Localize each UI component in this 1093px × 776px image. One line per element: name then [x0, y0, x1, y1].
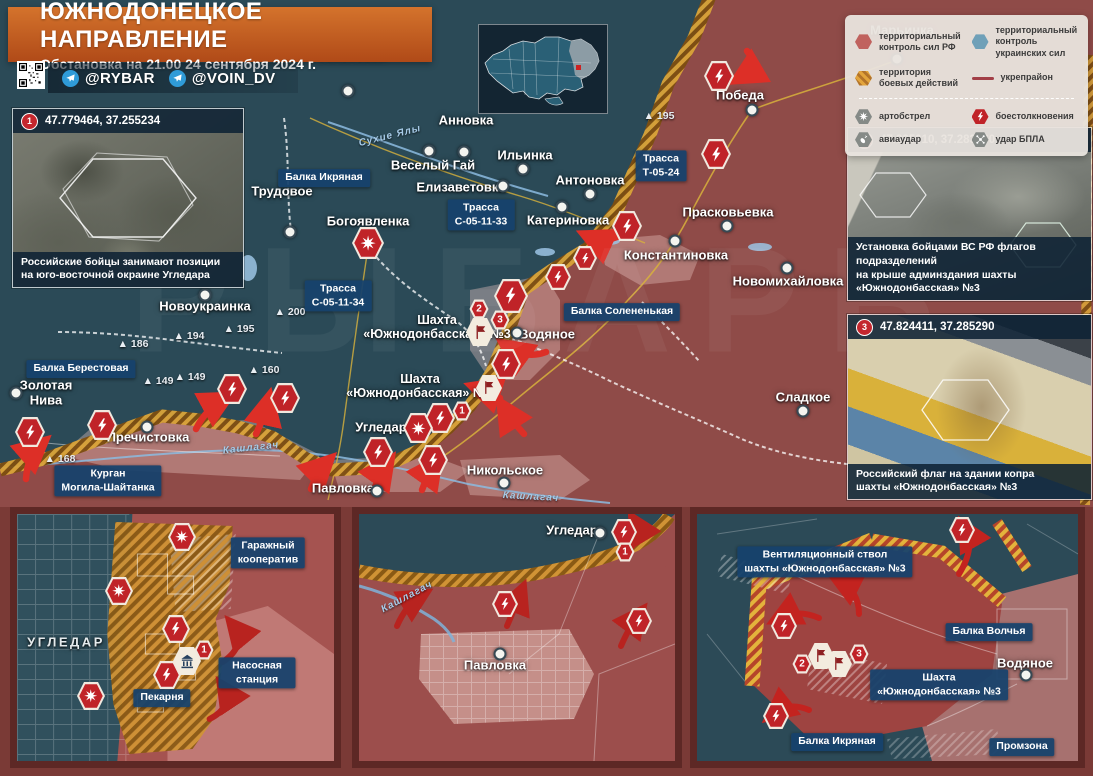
clash-icon — [363, 437, 393, 467]
town-dot — [498, 477, 511, 490]
clash-icon — [418, 445, 448, 475]
marker-badge: 3 — [491, 311, 510, 330]
photo-inset-1: 1 47.779464, 37.255234 Российские бойцы … — [12, 108, 244, 288]
town-dot — [594, 527, 607, 540]
clash-icon — [545, 264, 571, 290]
artillery-icon — [352, 227, 384, 259]
clash-icon — [972, 109, 989, 124]
area-label: Пекарня — [133, 689, 190, 707]
town-dot — [511, 327, 524, 340]
height-marker: ▲ 200 — [275, 306, 306, 318]
area-label: Шахта «Южнодонбасская» №3 — [870, 669, 1008, 700]
clash-icon — [573, 246, 597, 270]
artillery-icon — [105, 577, 133, 605]
town-label: Угледар — [355, 421, 406, 436]
page-title: ЮЖНОДОНЕЦКОЕ НАПРАВЛЕНИЕ — [40, 0, 432, 54]
rf-zone-swatch — [855, 34, 872, 49]
clash-icon — [771, 613, 797, 639]
town-dot — [497, 180, 510, 193]
marker-badge: 2 — [470, 300, 489, 319]
photo-header: 1 47.779464, 37.255234 — [13, 109, 243, 133]
town-label: Ильинка — [497, 149, 552, 164]
legend-item-artillery: артобстрел — [855, 109, 962, 124]
town-dot — [584, 188, 597, 201]
area-label: Балка Икряная — [278, 169, 370, 187]
photo-caption: Российский флаг на здании копра шахты «Ю… — [848, 464, 1091, 499]
town-dot — [10, 387, 23, 400]
clash-icon — [949, 517, 975, 543]
town-dot — [721, 220, 734, 233]
town-dot — [141, 421, 154, 434]
height-marker: ▲ 195 — [224, 323, 255, 335]
ua-zone-swatch — [972, 34, 989, 49]
legend-divider — [859, 98, 1074, 100]
clash-icon — [15, 417, 45, 447]
height-marker: ▲ 168 — [45, 453, 76, 465]
town-label: Константиновка — [624, 249, 728, 264]
legend-label: территория боевых действий — [879, 67, 962, 90]
town-label: Сладкое — [776, 391, 831, 406]
marker-badge: 1 — [195, 641, 214, 660]
legend-item-drone: удар БПЛА — [972, 132, 1079, 147]
photo-inset-3: 3 47.824411, 37.285290 Российский флаг н… — [847, 314, 1092, 500]
legend-item-clash: боестолкновения — [972, 109, 1079, 124]
photo-number-badge: 3 — [856, 319, 873, 336]
town-label: Елизаветовка — [416, 181, 505, 196]
flag-icon — [476, 375, 502, 401]
marker-badge: 1 — [616, 543, 635, 562]
telegram-strip: @RYBAR @VOIN_DV — [48, 63, 298, 93]
artillery-icon — [168, 523, 196, 551]
clash-icon — [626, 608, 652, 634]
town-label: Водяное — [519, 328, 575, 343]
airstrike-icon — [855, 132, 872, 147]
height-marker: ▲ 160 — [249, 364, 280, 376]
legend-item-fortline: укрепрайон — [972, 67, 1079, 90]
photo-number-badge: 1 — [21, 113, 38, 130]
legend-item-airstrike: авиаудар — [855, 132, 962, 147]
area-label: Насосная станция — [219, 657, 296, 688]
town-label: Шахта «Южнодонбасская» №1 — [346, 372, 493, 400]
town-dot — [781, 262, 794, 275]
height-marker: ▲ 149 — [143, 375, 174, 387]
river-label: Кашлагач — [379, 579, 434, 615]
city-inset-mine-area: Вентиляционный ствол шахты «Южнодонбасск… — [690, 507, 1085, 768]
legend-label: территориальный контроль украинских сил — [996, 25, 1079, 59]
locator-highlight — [576, 65, 581, 70]
clash-icon — [763, 703, 789, 729]
artillery-icon — [855, 109, 872, 124]
town-dot — [284, 226, 297, 239]
town-label: Антоновка — [556, 174, 625, 189]
town-label: УГЛЕДАР — [27, 636, 105, 651]
title-bar: ЮЖНОДОНЕЦКОЕ НАПРАВЛЕНИЕ Обстановка на 2… — [8, 7, 432, 62]
town-dot — [669, 235, 682, 248]
town-dot — [423, 145, 436, 158]
marker-badge: 1 — [453, 402, 472, 421]
telegram-handle: @RYBAR — [85, 70, 155, 87]
area-label: Курган Могила-Шайтанка — [54, 465, 161, 496]
clash-icon — [611, 519, 637, 545]
photo-coordinates: 47.824411, 37.285290 — [880, 321, 994, 333]
legend-label: боестолкновения — [996, 111, 1074, 122]
town-dot — [556, 201, 569, 214]
telegram-icon — [62, 70, 79, 87]
qr-code — [17, 61, 45, 89]
clash-icon — [701, 139, 731, 169]
area-label: Промзона — [989, 738, 1054, 756]
map-poster: РЫБАРЬ МарьинкаПобедаУспеновкаАнновкаТру… — [0, 0, 1093, 776]
legend-item-rf-control: территориальный контроль сил РФ — [855, 25, 962, 59]
telegram-handle: @VOIN_DV — [192, 70, 276, 87]
photo-coordinates: 47.779464, 37.255234 — [45, 115, 160, 127]
town-label: Катериновка — [527, 214, 609, 229]
area-label: Балка Берестовая — [26, 360, 135, 378]
river-label: Кашлагач — [502, 490, 559, 504]
height-marker: ▲ 194 — [174, 330, 205, 342]
clash-icon — [494, 279, 528, 313]
legend: территориальный контроль сил РФ территор… — [845, 15, 1088, 156]
inset-labels-layer: Вентиляционный ствол шахты «Южнодонбасск… — [697, 514, 1078, 761]
telegram-link-voindv[interactable]: @VOIN_DV — [169, 70, 276, 87]
clash-icon — [492, 591, 518, 617]
town-label: Угледар — [546, 524, 597, 539]
legend-label: авиаудар — [879, 134, 921, 145]
town-label: Прасковьевка — [683, 206, 774, 221]
area-label: Балка Солененькая — [564, 303, 680, 321]
clash-icon — [270, 383, 300, 413]
flag-icon — [826, 651, 852, 677]
town-label: Золотая Нива — [20, 378, 73, 407]
town-label: Трудовое — [251, 185, 312, 200]
artillery-icon — [403, 413, 433, 443]
clash-icon — [162, 615, 190, 643]
height-marker: ▲ 149 — [175, 371, 206, 383]
height-marker: ▲ 186 — [118, 338, 149, 350]
area-label: Трасса Т-05-24 — [636, 150, 687, 181]
legend-item-combat-zone: территория боевых действий — [855, 67, 962, 90]
legend-label: укрепрайон — [1001, 72, 1053, 83]
inset-labels-layer: УГЛЕДАРГаражный кооперативНасосная станц… — [17, 514, 334, 761]
town-dot — [342, 85, 355, 98]
main-map: РЫБАРЬ МарьинкаПобедаУспеновкаАнновкаТру… — [0, 0, 1093, 507]
town-dot — [517, 163, 530, 176]
town-dot — [797, 405, 810, 418]
legend-label: удар БПЛА — [996, 134, 1045, 145]
photo-caption: Установка бойцами ВС РФ флагов подраздел… — [848, 237, 1091, 300]
photo-caption: Российские бойцы занимают позиции на юго… — [13, 252, 243, 287]
town-label: Новомихайловка — [733, 275, 844, 290]
area-label: Гаражный кооператив — [231, 537, 305, 568]
photo-header: 3 47.824411, 37.285290 — [848, 315, 1091, 339]
clash-icon — [704, 61, 734, 91]
town-label: Анновка — [439, 114, 494, 129]
area-label: Балка Икряная — [791, 733, 883, 751]
clash-icon — [612, 211, 642, 241]
town-label: Павловка — [464, 659, 526, 674]
inset-labels-layer: УгледарПавловкаКашлагач1 — [359, 514, 675, 761]
ukraine-locator-map — [478, 24, 608, 114]
area-label: Трасса С-05-11-33 — [448, 199, 515, 230]
town-label: Павловка — [312, 482, 374, 497]
town-dot — [746, 104, 759, 117]
clash-icon — [217, 374, 247, 404]
town-dot — [371, 485, 384, 498]
area-label: Балка Волчья — [946, 623, 1033, 641]
city-inset-pavlovka: УгледарПавловкаКашлагач1 — [352, 507, 682, 768]
drone-icon — [972, 132, 989, 147]
river-label: Сухие Ялы — [358, 123, 423, 149]
clash-icon — [87, 410, 117, 440]
town-dot — [494, 648, 507, 661]
town-dot — [458, 146, 471, 159]
legend-item-ua-control: территориальный контроль украинских сил — [972, 25, 1079, 59]
combat-zone-swatch — [855, 71, 872, 86]
town-label: Веселый Гай — [391, 159, 475, 174]
artillery-icon — [77, 682, 105, 710]
town-dot — [199, 289, 212, 302]
marker-badge: 3 — [850, 645, 869, 664]
height-marker: ▲ 195 — [644, 110, 675, 122]
river-label: Кашлагач — [222, 440, 279, 457]
legend-label: артобстрел — [879, 111, 930, 122]
legend-label: территориальный контроль сил РФ — [879, 31, 962, 54]
telegram-icon — [169, 70, 186, 87]
city-inset-ugledar: УГЛЕДАРГаражный кооперативНасосная станц… — [10, 507, 341, 768]
telegram-link-rybar[interactable]: @RYBAR — [62, 70, 155, 87]
town-dot — [1020, 669, 1033, 682]
town-label: Новоукраинка — [159, 300, 250, 315]
marker-badge: 2 — [793, 655, 812, 674]
fortline-swatch — [972, 77, 994, 80]
area-label: Трасса С-05-11-34 — [305, 280, 372, 311]
area-label: Вентиляционный ствол шахты «Южнодонбасск… — [737, 546, 912, 577]
